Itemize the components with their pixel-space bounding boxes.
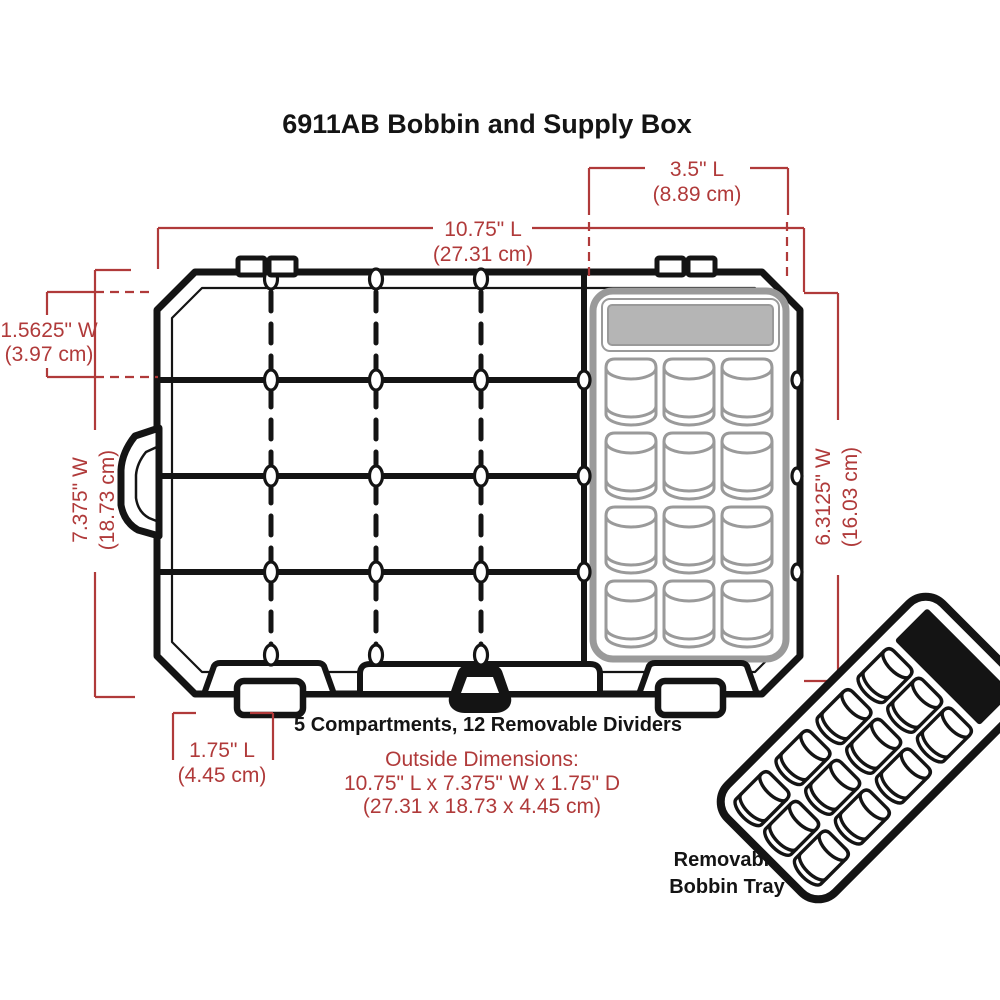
dim-box-width-cm: (18.73 cm) <box>96 450 119 550</box>
bobbin-slot <box>722 433 772 499</box>
outside-dimensions-metric: (27.31 x 18.73 x 4.45 cm) <box>363 795 601 818</box>
bobbin-slot <box>606 359 656 425</box>
dimension-latch-length: 1.75" L (4.45 cm) <box>173 713 273 787</box>
dim-box-width-in: 7.375" W <box>69 457 92 543</box>
dim-box-length-in: 10.75" L <box>444 218 522 241</box>
outside-dimensions-imperial: 10.75" L x 7.375" W x 1.75" D <box>344 772 620 795</box>
bobbin-slot <box>722 581 772 647</box>
front-clasp <box>449 665 512 713</box>
dim-tray-length-in: 3.5" L <box>670 158 724 181</box>
side-handle <box>121 428 159 536</box>
bobbin-slot <box>664 359 714 425</box>
bottom-left-latch-tab <box>237 681 303 715</box>
bobbin-slot <box>722 507 772 573</box>
dim-tray-width-cm: (16.03 cm) <box>839 447 862 547</box>
bobbin-slot <box>606 581 656 647</box>
hinge-icon <box>269 258 296 275</box>
front-clasp-window <box>461 677 499 693</box>
bobbin-slot <box>722 359 772 425</box>
hinge-icon <box>688 258 715 275</box>
bobbin-slot <box>606 507 656 573</box>
svg-text:Bobbin Tray: Bobbin Tray <box>669 876 785 898</box>
dimension-lid-width: 1.5625" W (3.97 cm) <box>0 292 158 377</box>
compartments-caption: 5 Compartments, 12 Removable Dividers <box>294 714 682 736</box>
bobbin-tray-in-bay <box>593 291 786 659</box>
dim-lid-width-cm: (3.97 cm) <box>5 343 94 366</box>
dim-lid-width-in: 1.5625" W <box>0 319 98 342</box>
page-title: 6911AB Bobbin and Supply Box <box>282 109 692 139</box>
dim-tray-width-in: 6.3125" W <box>812 448 835 546</box>
dim-latch-length-in: 1.75" L <box>189 739 255 762</box>
outside-dimensions-caption: Outside Dimensions: 10.75" L x 7.375" W … <box>344 748 620 818</box>
dim-latch-length-cm: (4.45 cm) <box>178 764 267 787</box>
dim-tray-length-cm: (8.89 cm) <box>653 183 742 206</box>
bobbin-slot <box>664 581 714 647</box>
bay-tray-handle-plate <box>608 305 773 345</box>
dim-box-length-cm: (27.31 cm) <box>433 243 533 266</box>
bobbin-slot <box>606 433 656 499</box>
dimension-tray-width: 6.3125" W (16.03 cm) <box>804 293 862 681</box>
bobbin-slot <box>664 507 714 573</box>
hinge-icon <box>657 258 684 275</box>
diagram: 6911AB Bobbin and Supply Box <box>0 0 1000 1000</box>
outside-dimensions-heading: Outside Dimensions: <box>385 748 579 771</box>
bobbin-slot <box>664 433 714 499</box>
hinge-icon <box>238 258 265 275</box>
supply-box-drawing <box>121 258 802 715</box>
bottom-right-latch-tab <box>658 681 723 715</box>
